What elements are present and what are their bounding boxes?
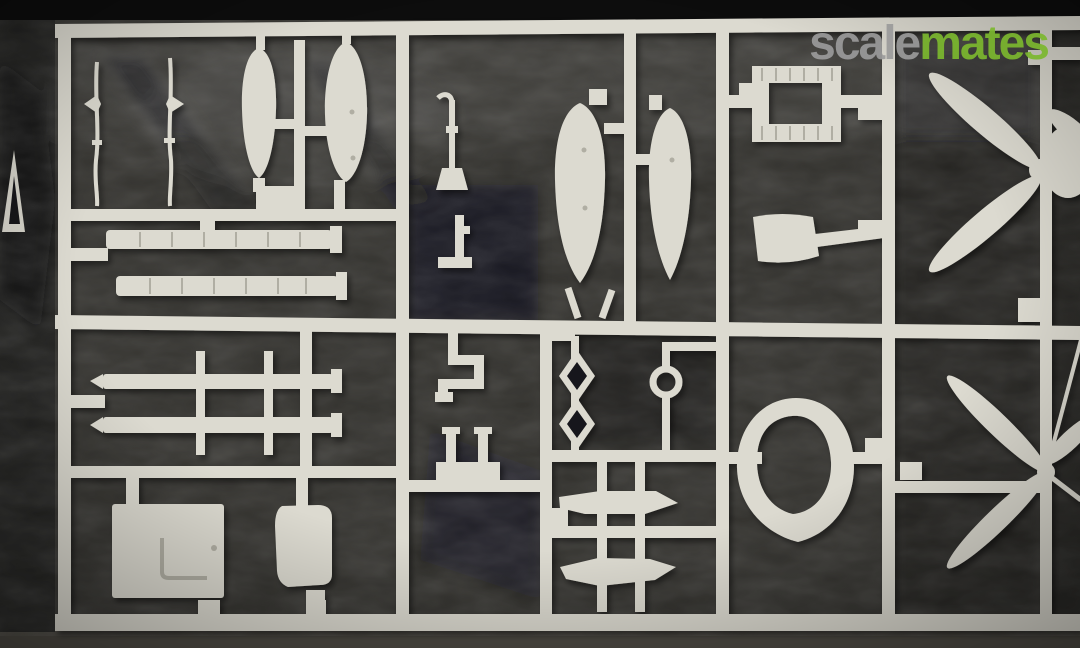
scalemates-watermark: scalemates bbox=[809, 17, 1048, 70]
watermark-scale-text: scale bbox=[809, 17, 920, 70]
watermark-mates-text: mates bbox=[919, 17, 1048, 70]
vignette-overlay bbox=[0, 0, 1080, 648]
sprue-photo: scalemates bbox=[0, 0, 1080, 648]
photo-canvas: scalemates bbox=[0, 0, 1080, 648]
